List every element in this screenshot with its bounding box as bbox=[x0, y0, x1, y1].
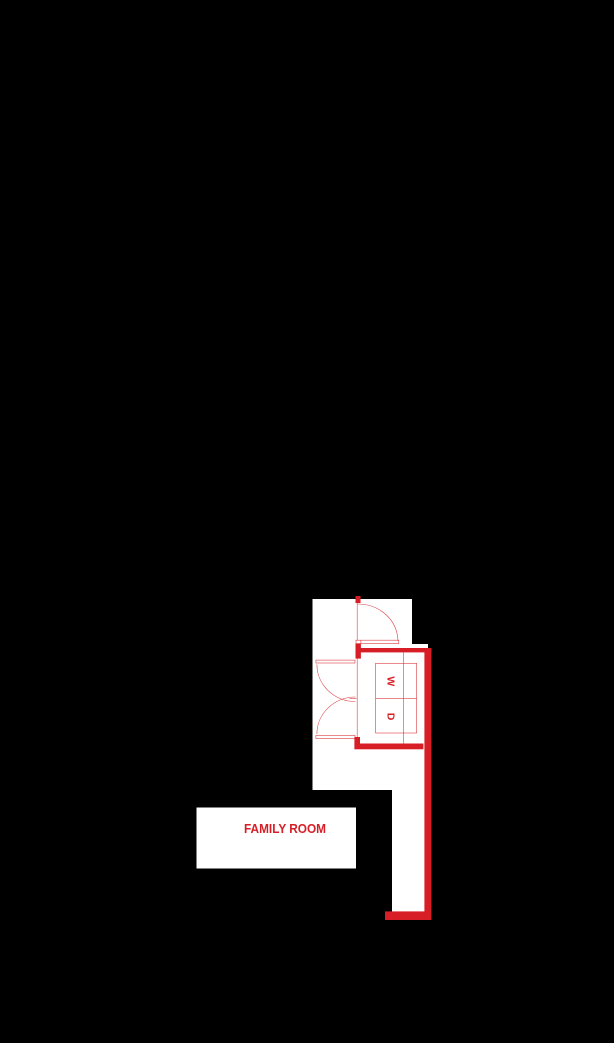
svg-text:FAMILY ROOM: FAMILY ROOM bbox=[244, 821, 326, 836]
svg-text:D: D bbox=[384, 713, 396, 721]
svg-text:W: W bbox=[384, 676, 396, 686]
